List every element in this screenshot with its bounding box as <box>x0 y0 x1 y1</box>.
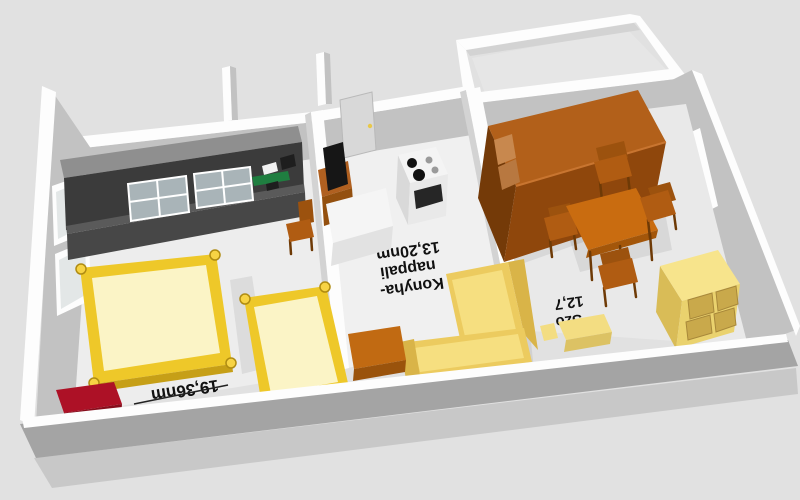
bed-mattress <box>92 265 220 371</box>
door-handle <box>368 124 372 128</box>
burner <box>432 167 439 174</box>
bed-post <box>320 282 330 292</box>
floor-plan-3d-view: 19,36nm Konyha- nappali 13,20nm Szo 12,7 <box>0 0 800 500</box>
glass-cabinet-1 <box>128 176 189 221</box>
pillar-1 <box>222 66 238 122</box>
bed-post <box>210 250 220 260</box>
floor-plan-canvas: 19,36nm Konyha- nappali 13,20nm Szo 12,7 <box>0 0 800 500</box>
coffee-table[interactable] <box>348 326 406 381</box>
glass-cabinet-2 <box>194 167 253 208</box>
stove[interactable] <box>396 147 448 225</box>
bed-post <box>226 358 236 368</box>
bed-post <box>76 264 86 274</box>
burner <box>413 169 425 181</box>
burner <box>426 157 433 164</box>
bed-post <box>240 294 250 304</box>
burner <box>407 158 417 168</box>
double-bed[interactable] <box>76 250 236 392</box>
pillar-2 <box>316 52 332 106</box>
